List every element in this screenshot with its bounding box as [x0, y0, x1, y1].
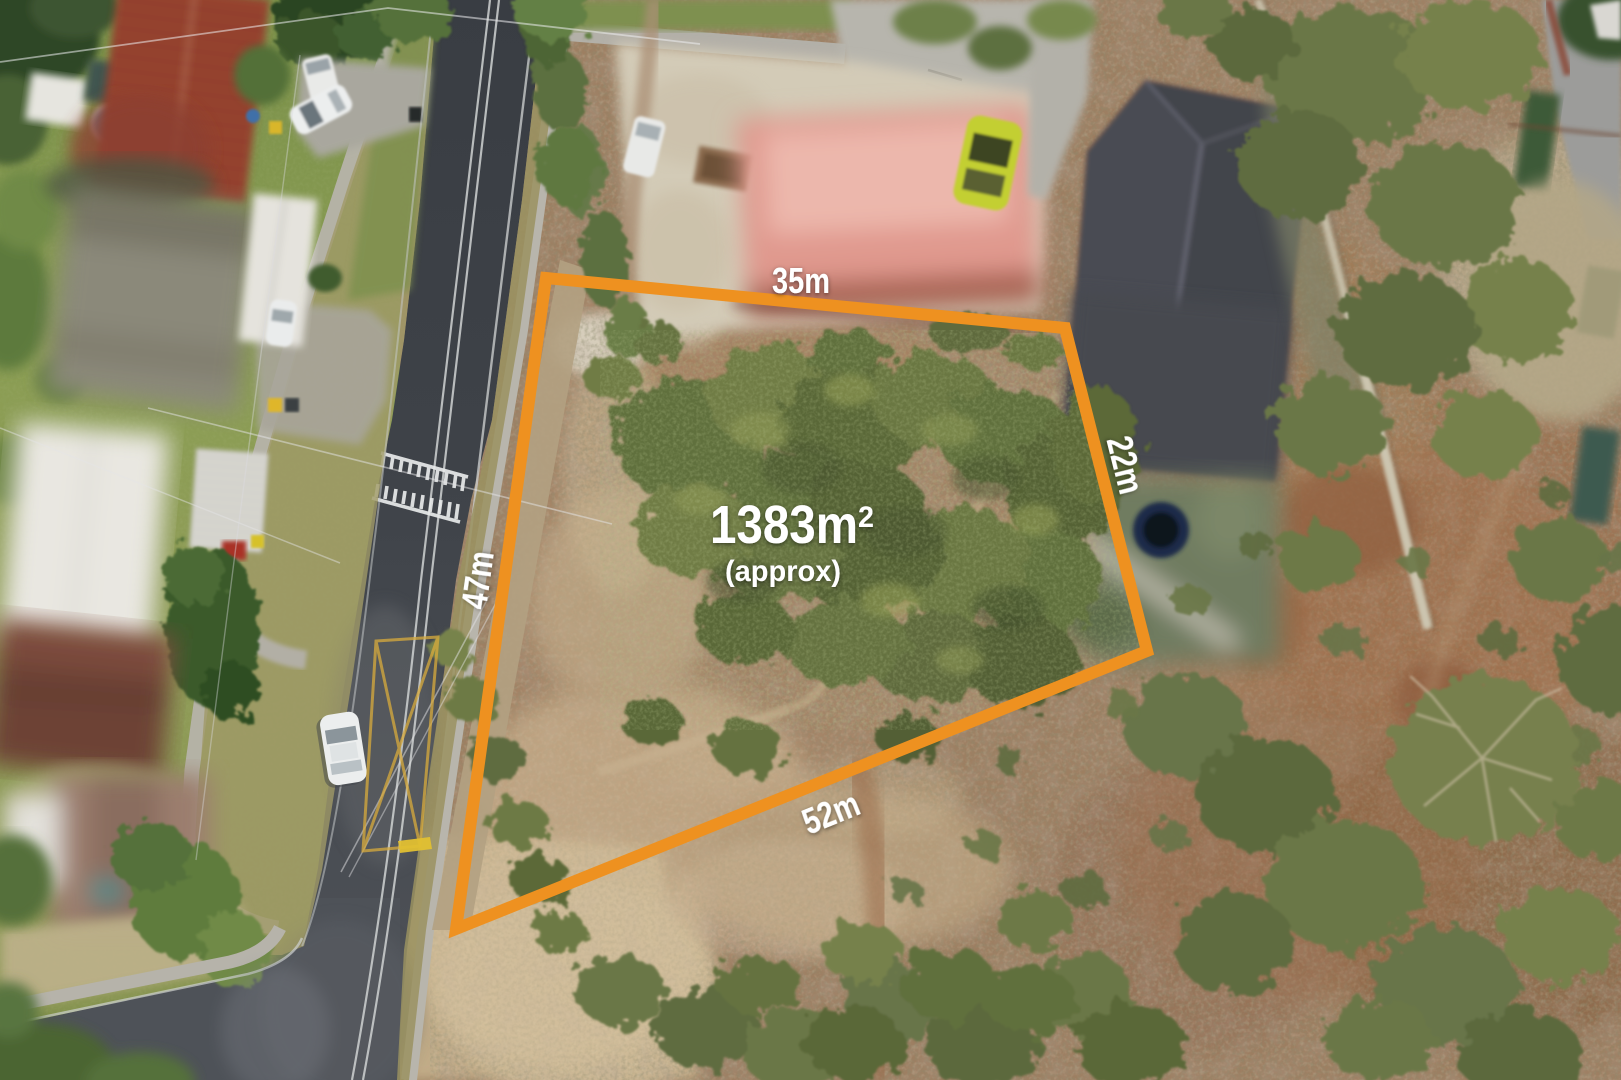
svg-text:35m: 35m [772, 260, 830, 301]
svg-text:47m: 47m [453, 548, 502, 611]
svg-text:2: 2 [858, 501, 874, 534]
svg-text:(approx): (approx) [725, 555, 841, 588]
svg-text:1383m: 1383m [710, 495, 858, 555]
